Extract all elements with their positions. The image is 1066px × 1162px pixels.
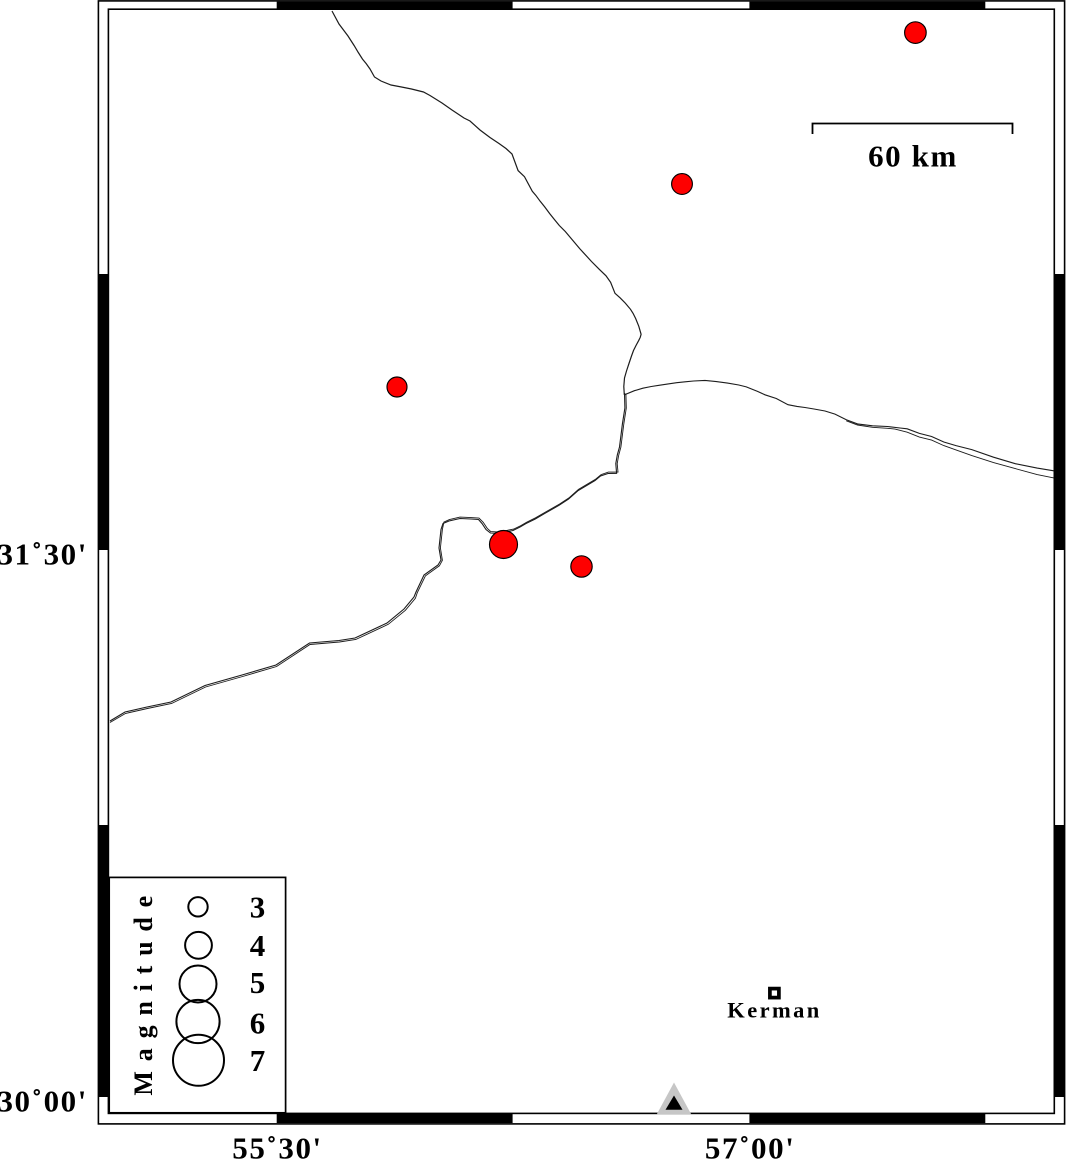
svg-text:60 km: 60 km [868,139,958,174]
svg-text:6: 6 [250,1006,266,1041]
svg-text:5: 5 [250,965,266,1000]
svg-text:7: 7 [250,1043,266,1078]
svg-text:4: 4 [250,928,266,963]
svg-text:Kerman: Kerman [727,998,821,1023]
svg-text:Magnitude: Magnitude [129,886,158,1096]
svg-text:57˚00': 57˚00' [705,1131,796,1162]
svg-text:30˚00': 30˚00' [0,1084,88,1119]
svg-text:3: 3 [250,890,266,925]
svg-text:31˚30': 31˚30' [0,537,88,572]
svg-text:55˚30': 55˚30' [232,1131,323,1162]
